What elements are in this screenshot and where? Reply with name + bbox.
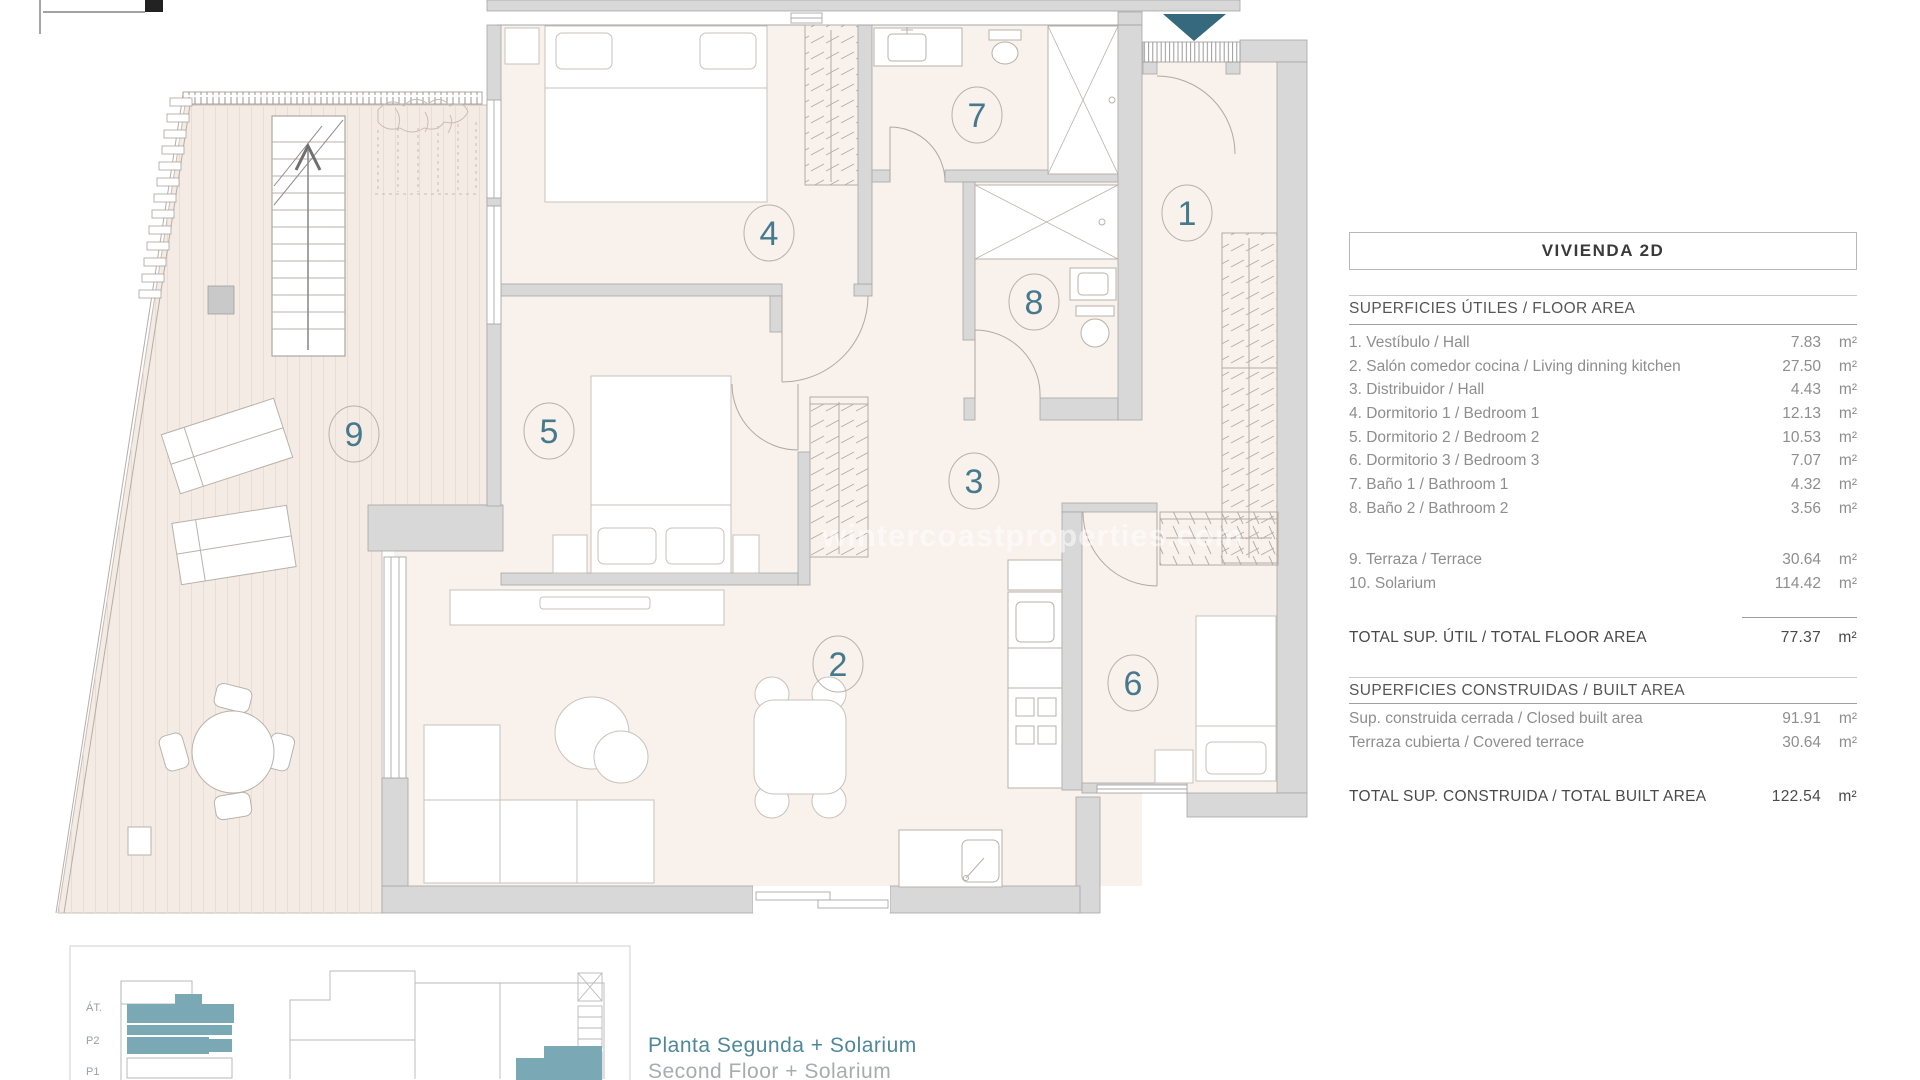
room-number: 5 [540, 413, 559, 451]
stairs [272, 116, 345, 356]
area-row: Sup. construida cerrada / Closed built a… [1349, 707, 1857, 731]
area-row: 9. Terraza / Terrace 30.64 m² [1349, 548, 1857, 572]
row-unit: m² [1821, 426, 1857, 450]
row-unit: m² [1821, 331, 1857, 355]
area-row: 4. Dormitorio 1 / Bedroom 1 12.13 m² [1349, 402, 1857, 426]
row-unit: m² [1821, 449, 1857, 473]
room-number: 8 [1025, 284, 1044, 322]
row-value: 10.53 [1759, 426, 1821, 450]
room-number: 1 [1178, 195, 1197, 233]
highlight-floor [175, 994, 202, 1004]
party-wall-hatch [1143, 42, 1240, 62]
total-value: 122.54 [1759, 785, 1821, 809]
key-diagram: ÁT. P2 P1 Planta Segunda + Solarium Seco… [70, 946, 917, 1080]
entrance-arrow-icon [1163, 14, 1226, 41]
unit-title: VIVIENDA 2D [1349, 232, 1857, 270]
row-value: 12.13 [1759, 402, 1821, 426]
key-caption-es: Planta Segunda + Solarium [648, 1034, 917, 1057]
building-key-plan [290, 971, 604, 1080]
row-label: 8. Baño 2 / Bathroom 2 [1349, 497, 1759, 521]
divider [1349, 295, 1857, 296]
row-value: 3.56 [1759, 497, 1821, 521]
row-value: 7.83 [1759, 331, 1821, 355]
kitchen-tall-unit [1008, 560, 1062, 590]
row-label: 9. Terraza / Terrace [1349, 548, 1759, 572]
row-value: 4.32 [1759, 473, 1821, 497]
row-label: 2. Salón comedor cocina / Living dinning… [1349, 355, 1759, 379]
floorplan-page: 1 2 3 4 5 6 7 8 [0, 0, 1920, 1080]
row-value: 91.91 [1759, 707, 1821, 731]
row-unit: m² [1821, 707, 1857, 731]
nightstand [505, 28, 539, 64]
key-caption-en: Second Floor + Solarium [648, 1060, 891, 1080]
built-area-header: SUPERFICIES CONSTRUIDAS / BUILT AREA [1349, 682, 1857, 700]
kitchen-sink [1016, 602, 1054, 642]
highlight-floor [127, 1037, 209, 1054]
divider [1349, 324, 1857, 325]
room-number: 3 [965, 463, 984, 501]
tv-sideboard [450, 590, 724, 625]
floor-label-p2: P2 [86, 1035, 99, 1047]
room-number: 6 [1124, 665, 1143, 703]
row-label: 7. Baño 1 / Bathroom 1 [1349, 473, 1759, 497]
row-value: 30.64 [1759, 731, 1821, 755]
row-unit: m² [1821, 548, 1857, 572]
area-row: 8. Baño 2 / Bathroom 2 3.56 m² [1349, 497, 1857, 521]
area-row: 6. Dormitorio 3 / Bedroom 3 7.07 m² [1349, 449, 1857, 473]
area-row: 5. Dormitorio 2 / Bedroom 2 10.53 m² [1349, 426, 1857, 450]
wall-right [1277, 62, 1307, 793]
highlight-floor [127, 1025, 232, 1035]
bed-double-room5 [591, 376, 731, 573]
room-number: 9 [345, 416, 364, 454]
bed-single-room6 [1196, 616, 1276, 781]
watermark: wintercoastproperties.com [821, 518, 1243, 553]
terrace-chimney [208, 286, 234, 314]
row-unit: m² [1821, 402, 1857, 426]
row-unit: m² [1821, 355, 1857, 379]
total-unit: m² [1821, 785, 1857, 809]
area-row: Terraza cubierta / Covered terrace 30.64… [1349, 731, 1857, 755]
total-divider [1742, 617, 1857, 618]
highlight-floor [209, 1039, 232, 1052]
highlight-floor [127, 1004, 234, 1023]
room-number: 7 [968, 97, 987, 135]
row-label: 5. Dormitorio 2 / Bedroom 2 [1349, 426, 1759, 450]
floor-label-p1: P1 [86, 1066, 99, 1078]
row-label: Terraza cubierta / Covered terrace [1349, 731, 1759, 755]
nightstand [733, 535, 759, 573]
terrace-trellis [183, 92, 482, 104]
total-built-area: TOTAL SUP. CONSTRUIDA / TOTAL BUILT AREA… [1349, 785, 1857, 809]
wall-bottom [382, 886, 753, 913]
row-value: 4.43 [1759, 378, 1821, 402]
area-row: 1. Vestíbulo / Hall 7.83 m² [1349, 331, 1857, 355]
floor-area-header: SUPERFICIES ÚTILES / FLOOR AREA [1349, 300, 1857, 318]
nightstand [553, 535, 587, 573]
area-row: 2. Salón comedor cocina / Living dinning… [1349, 355, 1857, 379]
kitchen-island [899, 830, 1002, 887]
wall-top-band [487, 0, 1240, 11]
closet-bedroom1 [805, 25, 858, 185]
room-number: 4 [760, 215, 779, 253]
row-label: Sup. construida cerrada / Closed built a… [1349, 707, 1759, 731]
floor-label-atico: ÁT. [86, 1001, 102, 1014]
frame-corner-mark [145, 0, 163, 12]
area-row: 10. Solarium 114.42 m² [1349, 572, 1857, 596]
highlight-unit [544, 1046, 602, 1058]
total-label: TOTAL SUP. CONSTRUIDA / TOTAL BUILT AREA [1349, 785, 1759, 809]
total-label: TOTAL SUP. ÚTIL / TOTAL FLOOR AREA [1349, 626, 1759, 650]
bath2-shower [975, 185, 1118, 259]
built-area-rows: Sup. construida cerrada / Closed built a… [1349, 707, 1857, 754]
divider [1349, 703, 1857, 704]
terrace-utility-box [128, 827, 151, 855]
row-value: 7.07 [1759, 449, 1821, 473]
room-number: 2 [829, 646, 848, 684]
row-unit: m² [1821, 572, 1857, 596]
outdoor-area-rows: 9. Terraza / Terrace 30.64 m² 10. Solari… [1349, 548, 1857, 595]
row-unit: m² [1821, 731, 1857, 755]
bath1-shower [1048, 26, 1118, 174]
bath1-toilet [989, 30, 1021, 64]
row-unit: m² [1821, 473, 1857, 497]
frame-marks [40, 0, 163, 34]
divider [1349, 677, 1857, 678]
total-value: 77.37 [1759, 626, 1821, 650]
area-row: 3. Distribuidor / Hall 4.43 m² [1349, 378, 1857, 402]
row-unit: m² [1821, 497, 1857, 521]
row-label: 1. Vestíbulo / Hall [1349, 331, 1759, 355]
row-label: 6. Dormitorio 3 / Bedroom 3 [1349, 449, 1759, 473]
row-unit: m² [1821, 378, 1857, 402]
row-label: 10. Solarium [1349, 572, 1759, 596]
row-value: 30.64 [1759, 548, 1821, 572]
row-value: 27.50 [1759, 355, 1821, 379]
floor-area-rows: 1. Vestíbulo / Hall 7.83 m² 2. Salón com… [1349, 331, 1857, 521]
highlight-unit [516, 1058, 602, 1080]
area-row: 7. Baño 1 / Bathroom 1 4.32 m² [1349, 473, 1857, 497]
total-floor-area: TOTAL SUP. ÚTIL / TOTAL FLOOR AREA 77.37… [1349, 626, 1857, 650]
total-unit: m² [1821, 626, 1857, 650]
row-label: 4. Dormitorio 1 / Bedroom 1 [1349, 402, 1759, 426]
floor-plan-drawing: 1 2 3 4 5 6 7 8 [0, 0, 1920, 1080]
bed-double-room4 [545, 26, 767, 202]
row-value: 114.42 [1759, 572, 1821, 596]
row-label: 3. Distribuidor / Hall [1349, 378, 1759, 402]
nightstand [1155, 750, 1193, 783]
